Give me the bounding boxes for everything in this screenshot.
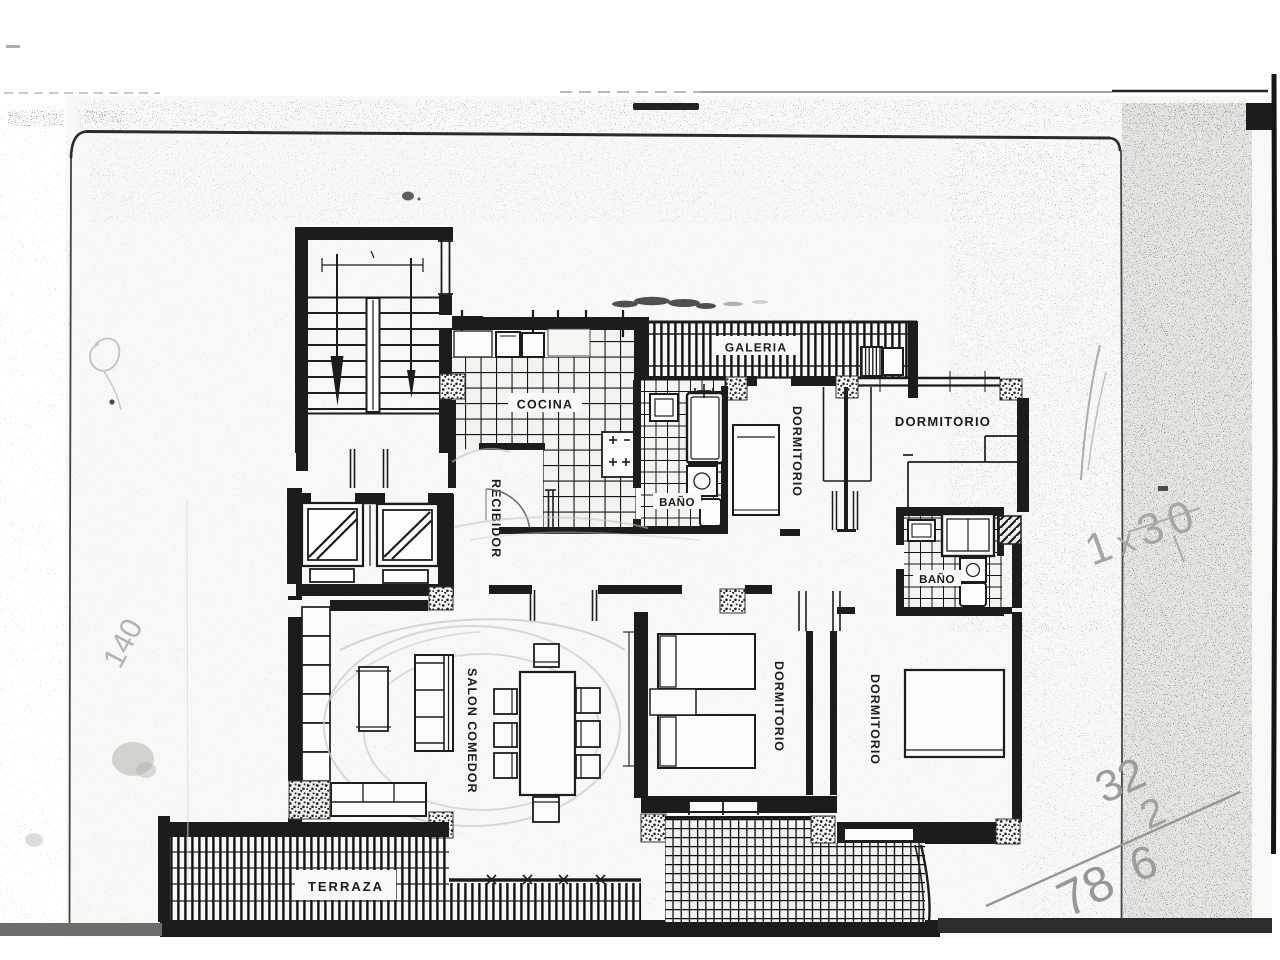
svg-text:COCINA: COCINA xyxy=(517,398,574,412)
svg-text:DORMITORIO: DORMITORIO xyxy=(895,414,991,429)
svg-text:DORMITORIO: DORMITORIO xyxy=(772,661,786,752)
svg-text:BAÑO: BAÑO xyxy=(919,572,955,586)
svg-text:TERRAZA: TERRAZA xyxy=(308,879,384,894)
svg-text:DORMITORIO: DORMITORIO xyxy=(790,406,804,497)
svg-text:BAÑO: BAÑO xyxy=(659,495,695,509)
svg-text:DORMITORIO: DORMITORIO xyxy=(868,674,882,765)
svg-text:SALON COMEDOR: SALON COMEDOR xyxy=(465,668,479,794)
svg-text:GALERIA: GALERIA xyxy=(725,341,787,355)
